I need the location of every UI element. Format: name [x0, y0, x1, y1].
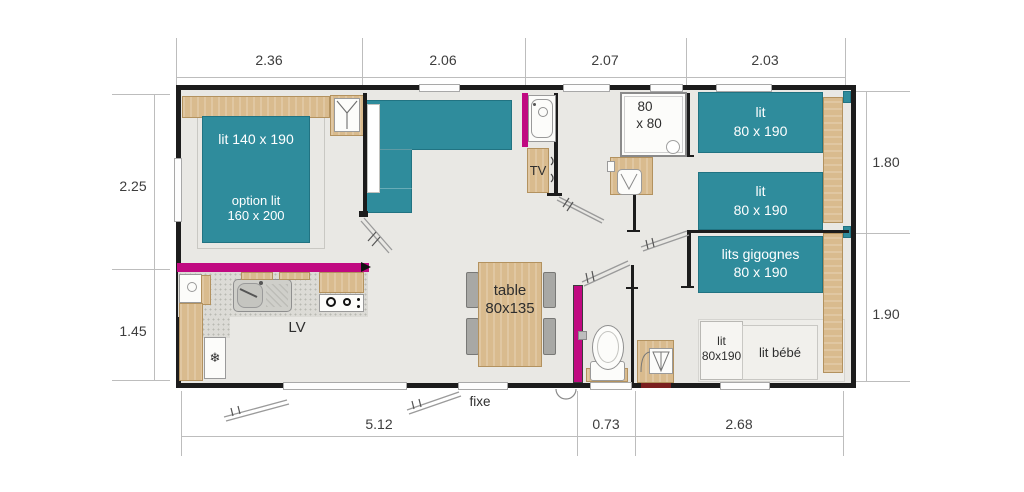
plan-linework [0, 0, 1024, 492]
kitchen-faucet-handle [240, 289, 257, 297]
swing-hatch-marks [231, 198, 654, 416]
wardrobe-hanger-icon [337, 101, 357, 129]
tv-bracket-icons [551, 157, 553, 182]
door-swing-lines [224, 197, 689, 421]
entry-door-arc [556, 389, 576, 399]
floorplan-canvas: 2.36 2.06 2.07 2.03 5.12 0.73 2.68 2.25 … [0, 0, 1024, 492]
wc-corner-sink-glyph [641, 352, 669, 372]
vanity-sink-glyph [621, 174, 637, 189]
